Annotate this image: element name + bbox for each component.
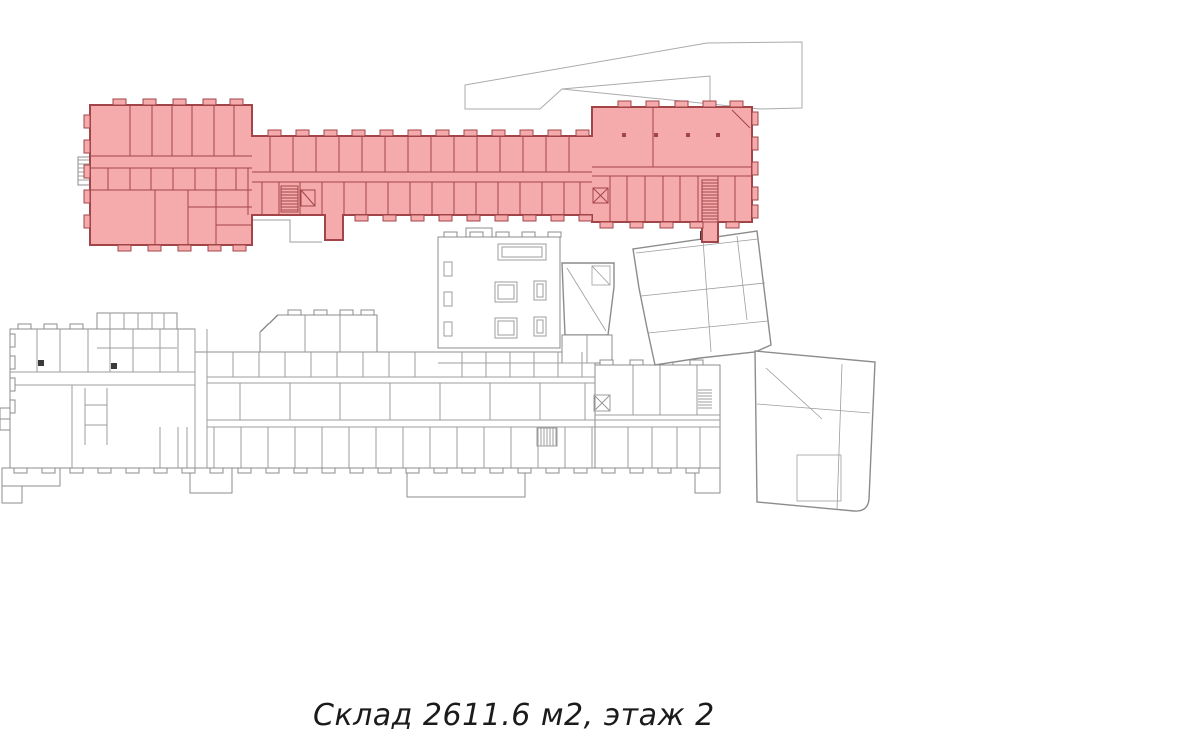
highlighted-warehouse-area[interactable] bbox=[84, 99, 758, 251]
plan-caption: Склад 2611.6 м2, этаж 2 bbox=[313, 698, 913, 733]
lower-right-block bbox=[755, 351, 875, 511]
mid-raised-block bbox=[260, 315, 377, 352]
ramp-area bbox=[562, 263, 614, 335]
left-wing bbox=[10, 329, 195, 468]
main-band bbox=[195, 352, 595, 468]
site-outline bbox=[465, 42, 802, 109]
tilted-wing bbox=[633, 231, 771, 365]
floor-plan-drawing bbox=[0, 0, 1200, 745]
floor-plan-page: Склад 2611.6 м2, этаж 2 bbox=[0, 0, 1200, 745]
